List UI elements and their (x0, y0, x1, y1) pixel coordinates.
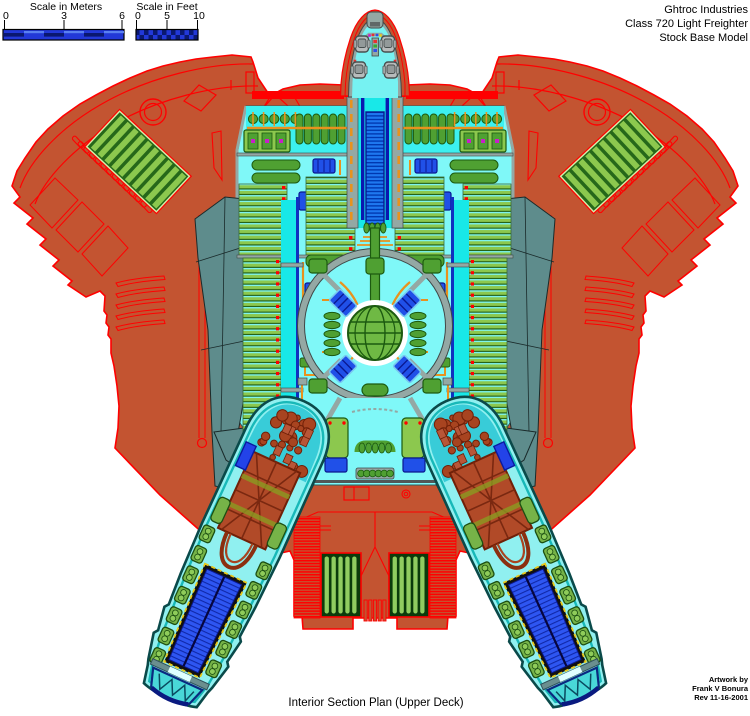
svg-text:Rev 11-16-2001: Rev 11-16-2001 (694, 693, 748, 702)
svg-text:Stock Base Model: Stock Base Model (659, 32, 748, 44)
svg-text:Artwork by: Artwork by (709, 675, 749, 684)
svg-text:0: 0 (135, 10, 141, 22)
svg-text:Ghtroc Industries: Ghtroc Industries (664, 4, 748, 16)
svg-text:Class 720 Light Freighter: Class 720 Light Freighter (625, 18, 748, 30)
svg-text:0: 0 (3, 10, 9, 22)
svg-text:Frank V Bonura: Frank V Bonura (692, 684, 749, 693)
svg-text:10: 10 (193, 10, 205, 22)
svg-text:Interior Section Plan (Upper D: Interior Section Plan (Upper Deck) (288, 697, 463, 709)
